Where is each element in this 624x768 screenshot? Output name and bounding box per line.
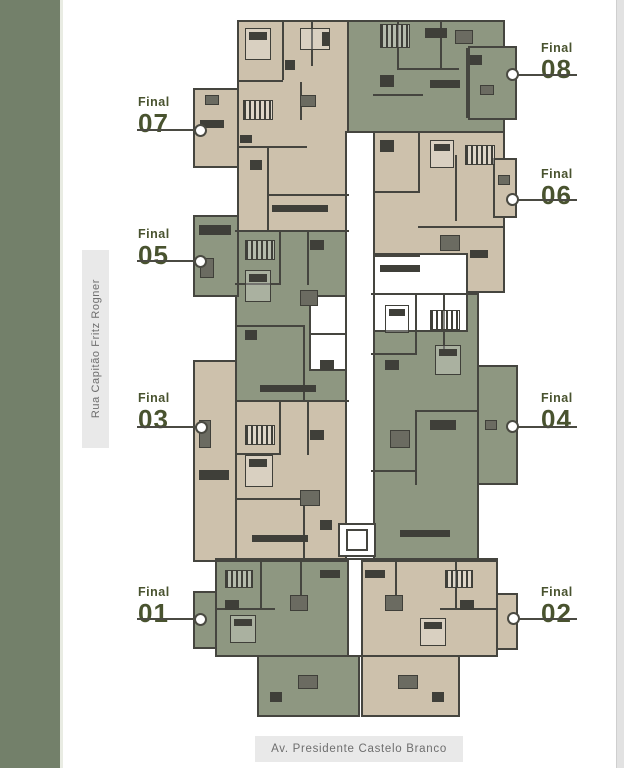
unit-label-word: Final: [541, 42, 573, 55]
furniture-item: [445, 570, 473, 588]
wall-segment: [235, 325, 305, 327]
unit-leader-line-02: [517, 618, 577, 620]
furniture-item: [380, 24, 410, 48]
furniture-item: [249, 459, 267, 467]
wall-segment: [361, 655, 460, 657]
furniture-item: [430, 310, 460, 330]
wall-segment: [260, 560, 262, 610]
furniture-item: [470, 55, 482, 65]
unit-leader-line-04: [517, 426, 577, 428]
furniture-item: [455, 30, 473, 44]
wall-segment: [371, 353, 417, 355]
wall-segment: [279, 230, 281, 285]
wall-segment: [373, 191, 420, 193]
furniture-item: [225, 570, 253, 588]
furniture-item: [298, 675, 318, 689]
unit-04-area: [371, 293, 479, 562]
furniture-item: [424, 622, 442, 629]
unit-leader-line-01: [137, 618, 197, 620]
service-shaft-inner: [346, 529, 368, 551]
furniture-item: [498, 175, 510, 185]
wall-segment: [237, 80, 283, 82]
unit-label-word: Final: [541, 168, 573, 181]
furniture-item: [380, 140, 394, 152]
unit-label-word: Final: [541, 586, 573, 599]
wall-segment: [307, 230, 309, 285]
furniture-item: [385, 360, 399, 370]
unit-marker-03: [195, 421, 208, 434]
wall-segment: [303, 498, 305, 562]
furniture-item: [249, 32, 267, 40]
unit-leader-line-03: [137, 426, 198, 428]
unit-leader-line-05: [137, 260, 197, 262]
unit-leader-line-07: [137, 129, 197, 131]
furniture-item: [249, 274, 267, 282]
corridor-stem: [347, 558, 363, 657]
furniture-item: [270, 692, 282, 702]
wall-segment: [415, 295, 417, 355]
furniture-item: [425, 28, 447, 38]
furniture-item: [430, 80, 460, 88]
furniture-item: [260, 385, 316, 392]
furniture-item: [380, 75, 394, 87]
unit-marker-08: [506, 68, 519, 81]
wall-segment: [235, 498, 305, 500]
furniture-item: [199, 225, 231, 235]
unit-marker-04: [506, 420, 519, 433]
wall-segment: [237, 146, 307, 148]
wall-segment: [257, 655, 360, 657]
unit-label-word: Final: [138, 586, 170, 599]
wall-segment: [282, 20, 284, 80]
furniture-item: [225, 600, 239, 610]
wall-segment: [418, 226, 505, 228]
unit-leader-line-06: [517, 199, 577, 201]
furniture-item: [480, 85, 494, 95]
unit-label-word: Final: [138, 392, 170, 405]
furniture-item: [440, 235, 460, 251]
furniture-item: [205, 95, 219, 105]
wall-segment: [466, 48, 468, 118]
wall-segment: [373, 94, 423, 96]
wall-segment: [373, 255, 420, 257]
floor-plan-page: Rua Capitão Fritz Rogner Av. Presidente …: [0, 0, 624, 768]
furniture-item: [300, 95, 316, 107]
furniture-item: [460, 600, 474, 610]
wall-segment: [235, 230, 349, 232]
furniture-item: [389, 309, 405, 316]
unit-label-word: Final: [541, 392, 573, 405]
unit-label-number: 05: [138, 242, 170, 268]
wall-segment: [415, 410, 479, 412]
furniture-item: [432, 692, 444, 702]
unit-marker-01: [194, 613, 207, 626]
furniture-item: [380, 265, 420, 272]
unit-leader-line-08: [517, 74, 577, 76]
furniture-item: [430, 420, 456, 430]
unit-06-balcony: [493, 158, 517, 218]
furniture-item: [320, 520, 332, 530]
building-floor-plan: AC Imóveis ✦ ✧ Final07Final05Final03Fina…: [0, 0, 624, 768]
furniture-item: [272, 205, 328, 212]
unit-label-word: Final: [138, 228, 170, 241]
furniture-item: [398, 675, 418, 689]
furniture-item: [300, 490, 320, 506]
furniture-item: [470, 250, 488, 258]
furniture-item: [250, 160, 262, 170]
furniture-item: [285, 60, 295, 70]
furniture-item: [245, 330, 257, 340]
wall-segment: [215, 558, 351, 560]
furniture-item: [485, 420, 497, 430]
furniture-item: [320, 360, 334, 370]
furniture-item: [320, 570, 340, 578]
furniture-item: [400, 530, 450, 537]
wall-segment: [418, 133, 420, 193]
wall-segment: [371, 470, 417, 472]
unit-03-wing: [193, 360, 237, 562]
furniture-item: [252, 535, 308, 542]
furniture-item: [310, 240, 324, 250]
unit-label-number: 08: [541, 56, 573, 82]
unit-marker-05: [194, 255, 207, 268]
unit-label-number: 01: [138, 600, 170, 626]
furniture-item: [310, 430, 324, 440]
unit-label-word: Final: [138, 96, 170, 109]
furniture-item: [245, 240, 275, 260]
central-corridor: [345, 131, 375, 562]
unit-label-06: Final06: [541, 168, 573, 208]
furniture-item: [234, 619, 252, 626]
wall-segment: [267, 194, 349, 196]
wall-segment: [371, 293, 479, 295]
furniture-item: [385, 595, 403, 611]
furniture-item: [240, 135, 252, 143]
unit-marker-06: [506, 193, 519, 206]
furniture-item: [434, 144, 450, 151]
furniture-item: [465, 145, 495, 165]
wall-segment: [279, 400, 281, 455]
furniture-item: [365, 570, 385, 578]
furniture-item: [322, 32, 330, 46]
wall-segment: [307, 400, 309, 455]
unit-marker-02: [507, 612, 520, 625]
furniture-item: [245, 425, 275, 445]
unit-label-number: 07: [138, 110, 170, 136]
wall-segment: [235, 400, 349, 402]
wall-segment: [455, 155, 457, 221]
wall-segment: [397, 68, 459, 70]
wall-segment: [415, 410, 417, 485]
unit-marker-07: [194, 124, 207, 137]
furniture-item: [290, 595, 308, 611]
wall-segment: [349, 558, 498, 560]
wall-segment: [267, 148, 269, 232]
furniture-item: [300, 290, 318, 306]
furniture-item: [439, 349, 457, 356]
wall-segment: [215, 608, 275, 610]
furniture-item: [243, 100, 273, 120]
unit-label-number: 02: [541, 600, 573, 626]
unit-label-number: 06: [541, 182, 573, 208]
furniture-item: [199, 470, 229, 480]
furniture-item: [390, 430, 410, 448]
